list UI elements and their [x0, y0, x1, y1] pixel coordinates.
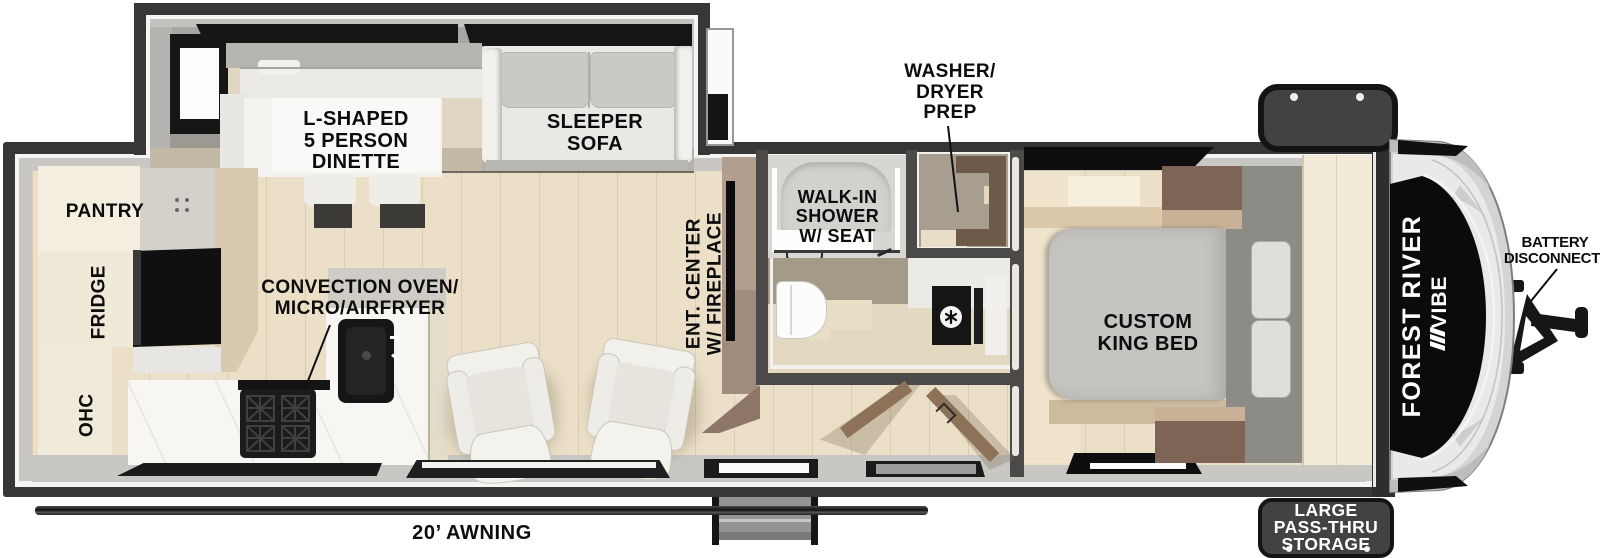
svg-text:VIBE: VIBE — [1428, 275, 1451, 328]
svg-text:DISCONNECT: DISCONNECT — [1504, 250, 1600, 267]
svg-text:BATTERY: BATTERY — [1521, 234, 1588, 251]
svg-text:FOREST RIVER: FOREST RIVER — [1398, 215, 1426, 418]
